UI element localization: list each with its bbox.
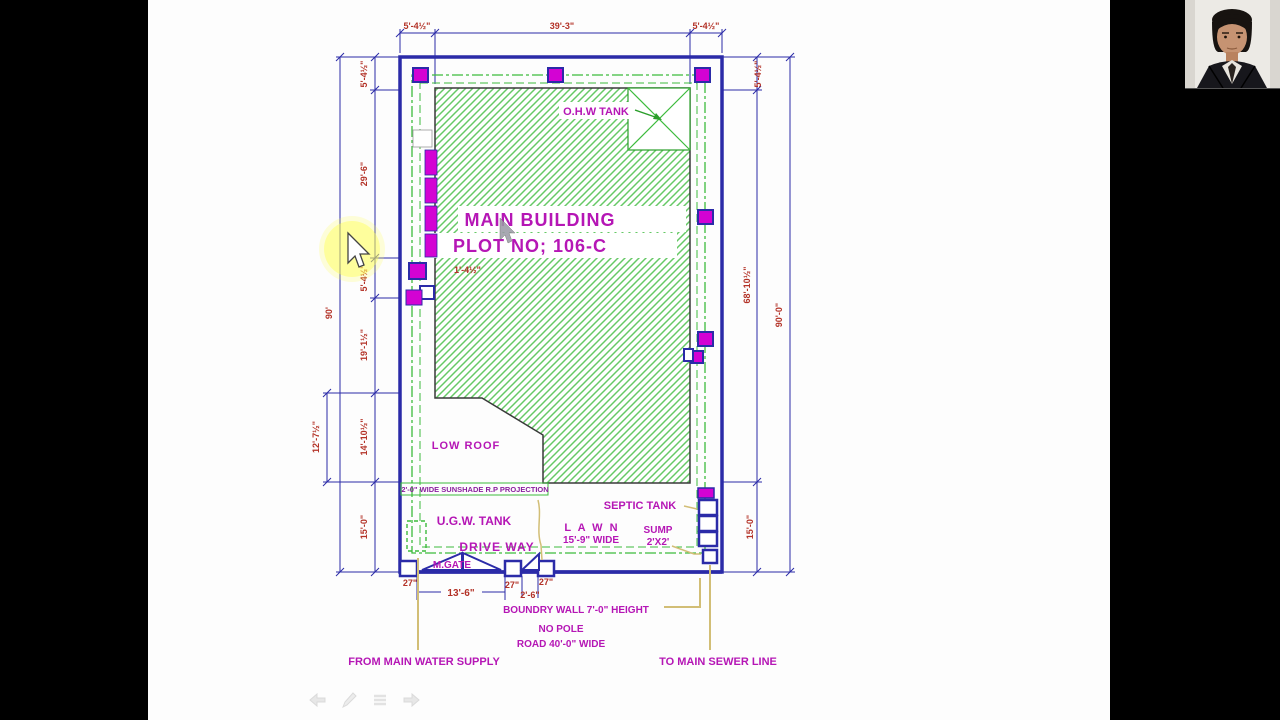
dim-column: 1'-4½" xyxy=(454,265,481,275)
forward-arrow-icon[interactable] xyxy=(401,692,421,709)
dim-top-right: 5'-4½" xyxy=(693,21,720,31)
label-sump: SUMP xyxy=(644,525,673,536)
main-building xyxy=(433,88,690,483)
label-drive-way: DRIVE WAY xyxy=(459,540,534,554)
label-lawn-2: 15'-9" WIDE xyxy=(563,535,619,546)
label-ugw-tank: U.G.W. TANK xyxy=(437,514,512,528)
dim-left-b: 29'-6" xyxy=(359,162,369,186)
video-frame: 2'-0" WIDE SUNSHADE R.P PROJECTION 5'-4½… xyxy=(0,0,1280,720)
label-septic-tank: SEPTIC TANK xyxy=(604,500,677,512)
pencil-icon[interactable] xyxy=(339,692,359,709)
septic-tank-assembly xyxy=(698,488,717,563)
site-plan-drawing: 2'-0" WIDE SUNSHADE R.P PROJECTION 5'-4½… xyxy=(148,0,1110,720)
dim-pillar-a: 27" xyxy=(403,578,417,588)
small-gate-leaf xyxy=(522,554,539,570)
title-main-building: MAIN BUILDING xyxy=(465,210,616,230)
label-sump-size: 2'X2' xyxy=(647,537,670,548)
player-toolbar xyxy=(308,692,421,709)
dim-pillar-b: 27" xyxy=(505,580,519,590)
dim-left-f: 15'-0" xyxy=(359,515,369,539)
back-arrow-icon[interactable] xyxy=(308,692,328,709)
dim-gate-small: 2'-6" xyxy=(520,590,539,600)
title-plot-no: PLOT NO; 106-C xyxy=(453,236,607,256)
dim-right-b: 68'-10½" xyxy=(742,267,752,304)
label-low-roof: LOW ROOF xyxy=(432,440,501,452)
dim-right-a: 5'-4½" xyxy=(753,61,763,88)
sump-box xyxy=(703,550,717,563)
dim-right-c: 15'-0" xyxy=(745,515,755,539)
dim-gate-main: 13'-6" xyxy=(447,588,474,599)
dim-left-a: 5'-4½" xyxy=(359,61,369,88)
label-road: ROAD 40'-0" WIDE xyxy=(517,639,606,650)
dim-top-mid: 39'-3" xyxy=(550,21,574,31)
menu-icon[interactable] xyxy=(370,692,390,709)
dim-pillar-c: 27" xyxy=(539,577,553,587)
label-water-supply: FROM MAIN WATER SUPPLY xyxy=(348,656,500,668)
dim-top-left: 5'-4½" xyxy=(404,21,431,31)
label-lawn-1: L A W N xyxy=(564,522,619,534)
label-sewer-line: TO MAIN SEWER LINE xyxy=(659,656,777,668)
sunshade-note: 2'-0" WIDE SUNSHADE R.P PROJECTION xyxy=(401,483,549,495)
sunshade-label: 2'-0" WIDE SUNSHADE R.P PROJECTION xyxy=(401,485,548,494)
label-m-gate: M.GATE xyxy=(433,560,471,571)
wall-column-strip xyxy=(413,130,437,257)
label-ohw-tank: O.H.W TANK xyxy=(563,106,629,118)
webcam-overlay xyxy=(1185,0,1280,89)
dim-left-d: 19'-1½" xyxy=(359,329,369,361)
cursor-highlight xyxy=(319,216,385,282)
label-no-pole: NO POLE xyxy=(538,624,583,635)
presenter-photo xyxy=(1185,0,1280,88)
dim-left-offset: 12'-7½" xyxy=(311,421,321,453)
drawing-canvas: 2'-0" WIDE SUNSHADE R.P PROJECTION 5'-4½… xyxy=(148,0,1110,720)
label-boundary-wall: BOUNDRY WALL 7'-0" HEIGHT xyxy=(503,605,649,616)
dim-left-overall: 90' xyxy=(324,307,334,319)
dim-left-e: 14'-10½" xyxy=(359,419,369,456)
dim-right-overall: 90'-0" xyxy=(774,303,784,327)
